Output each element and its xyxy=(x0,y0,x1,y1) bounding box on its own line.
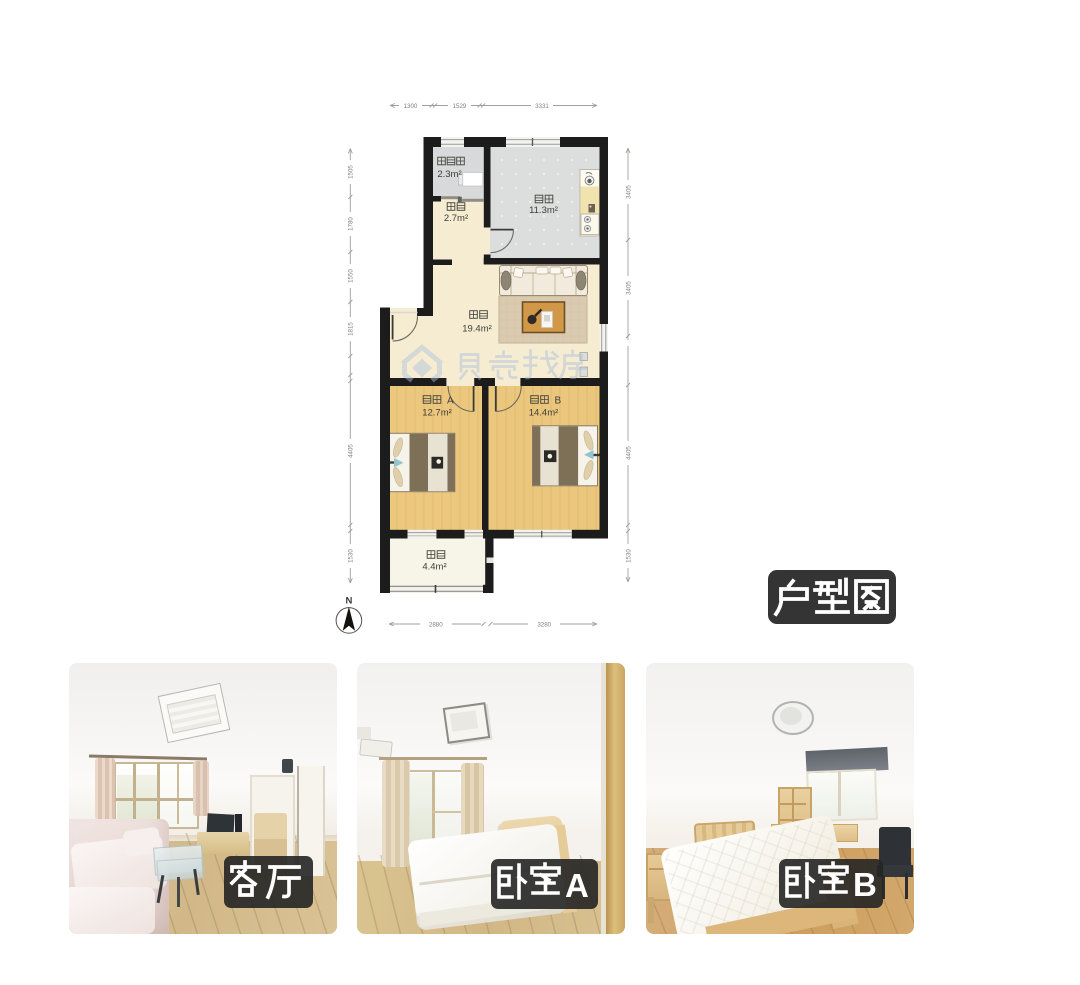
svg-text:12.7m²: 12.7m² xyxy=(422,408,452,419)
svg-text:11.3m²: 11.3m² xyxy=(529,205,558,216)
svg-text:1300: 1300 xyxy=(404,103,418,110)
svg-text:N: N xyxy=(345,596,352,607)
svg-text:1529: 1529 xyxy=(453,103,467,110)
svg-text:1505: 1505 xyxy=(348,165,355,179)
svg-text:4405: 4405 xyxy=(625,446,632,460)
svg-text:3405: 3405 xyxy=(625,185,632,199)
svg-text:19.4m²: 19.4m² xyxy=(462,324,492,335)
svg-text:2.7m²: 2.7m² xyxy=(444,213,468,224)
svg-text:B: B xyxy=(555,396,562,407)
svg-text:3331: 3331 xyxy=(535,103,549,110)
svg-text:3405: 3405 xyxy=(625,281,632,295)
svg-text:2880: 2880 xyxy=(429,621,443,628)
svg-text:14.4m²: 14.4m² xyxy=(529,408,559,419)
svg-text:1530: 1530 xyxy=(625,549,632,563)
svg-text:B: B xyxy=(853,866,877,903)
svg-text:1530: 1530 xyxy=(348,549,355,563)
svg-text:3280: 3280 xyxy=(537,621,551,628)
svg-text:2.3m²: 2.3m² xyxy=(437,169,461,180)
svg-text:1780: 1780 xyxy=(348,217,355,231)
svg-text:4.4m²: 4.4m² xyxy=(422,562,446,573)
svg-text:4405: 4405 xyxy=(348,444,355,458)
svg-text:A: A xyxy=(565,867,589,904)
svg-text:A: A xyxy=(447,396,454,407)
svg-text:1550: 1550 xyxy=(348,269,355,283)
svg-text:1815: 1815 xyxy=(348,322,355,336)
